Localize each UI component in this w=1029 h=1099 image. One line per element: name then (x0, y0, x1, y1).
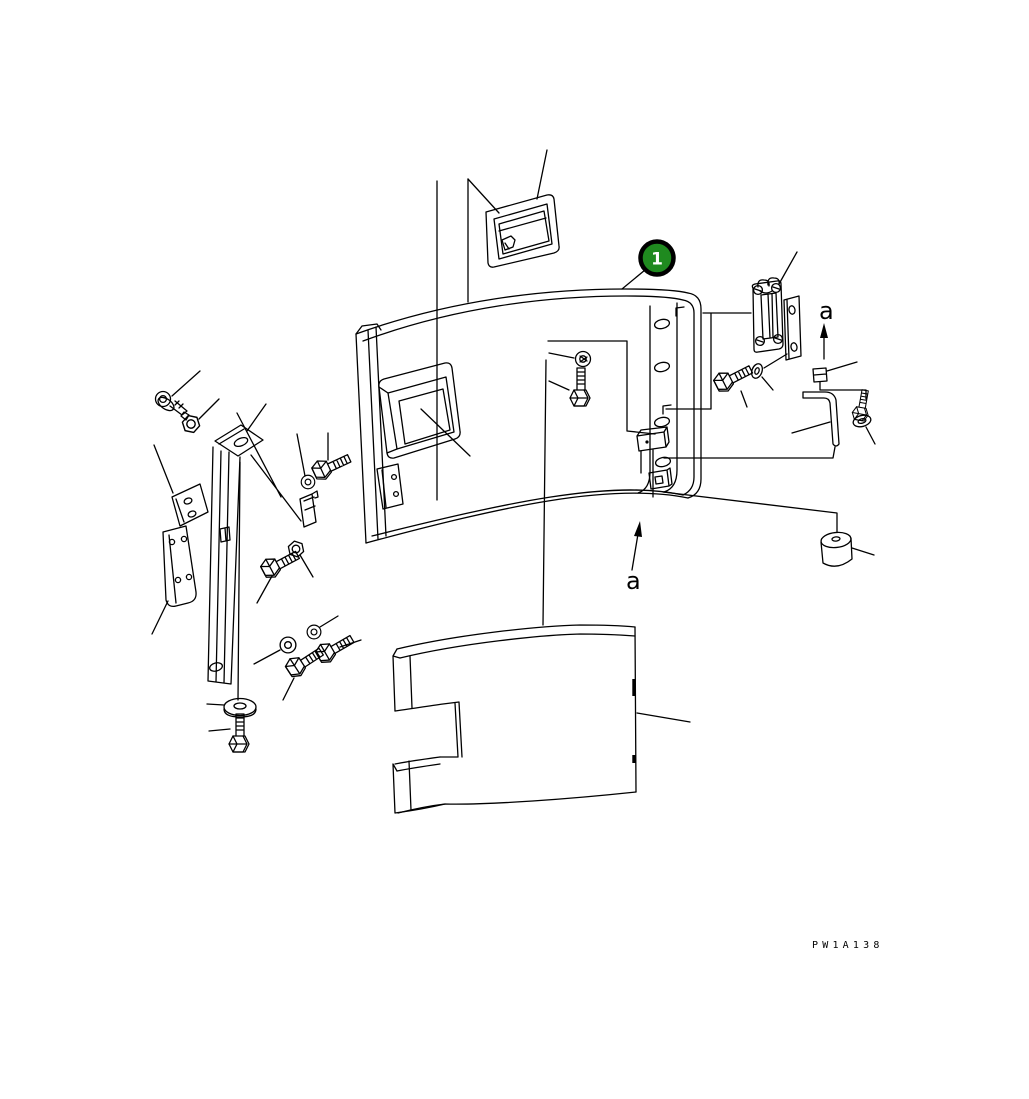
small-washer (301, 475, 315, 489)
hinge-assembly (712, 252, 801, 407)
rod-leader-line (664, 447, 835, 458)
mid-door-fasteners (549, 352, 591, 407)
hinge-leader-line (779, 252, 797, 284)
bolt-leader (257, 576, 272, 603)
flat-washer (307, 625, 321, 639)
door-inner-frame-line2 (638, 306, 650, 493)
rubber-cushion (820, 531, 874, 566)
square-nut (813, 368, 827, 382)
mount-strip-assembly (152, 371, 361, 752)
slot-collector-leader (666, 313, 751, 409)
projection-line (437, 179, 468, 500)
flat-washer (280, 637, 296, 653)
cushion-pointer-line (852, 548, 874, 555)
door-slot-holes (654, 318, 672, 468)
callout-leader-line (622, 270, 645, 289)
hex-bolt (570, 368, 590, 406)
handle-leader-line (468, 150, 547, 213)
nut-leader (199, 399, 219, 419)
hinge-bolt (712, 360, 755, 395)
hinge-bolt-leader (741, 391, 747, 407)
tab-leader (247, 404, 266, 431)
drawing-code: PW1A138 (812, 940, 884, 951)
pocket-leader-line (421, 409, 470, 456)
callout-number: 1 (651, 250, 663, 270)
small-bolt-leader (866, 427, 875, 444)
bolt-leader (283, 678, 294, 700)
view-arrow-a-bottom: a (626, 521, 642, 595)
long-plate-leader (152, 601, 168, 634)
door-inner-frame-line (664, 303, 677, 492)
washer-leader (320, 616, 338, 627)
bolt-leader (549, 381, 569, 390)
mount-strip (208, 404, 266, 684)
pan-screw (156, 371, 201, 420)
hex-nut (181, 415, 201, 434)
washer-leader (549, 353, 574, 358)
flush-handle-assembly (468, 150, 559, 267)
connector-leader (820, 382, 866, 399)
bolt-leader (209, 729, 230, 731)
seal-panel-pointer (637, 713, 690, 722)
seal-panel-leader-line (543, 360, 546, 625)
door-right-edge-inner (683, 300, 694, 495)
seal-panel (393, 625, 690, 813)
hinge-washer-leader (762, 377, 773, 390)
door-panel (356, 179, 837, 625)
l-shaped-rod (803, 392, 839, 446)
nut-leader (300, 555, 313, 577)
bolt-leader (340, 640, 361, 647)
callout-1-balloon[interactable]: 1 (622, 242, 674, 290)
small-plate (154, 445, 208, 526)
square-nut-leader (827, 362, 857, 371)
door-lower-bracket (377, 464, 403, 509)
small-washer-leader (297, 434, 305, 476)
view-label-a-bottom: a (626, 567, 641, 595)
door-left-band (356, 324, 386, 543)
hinge-rod-parts (792, 362, 875, 446)
pan-screw-leader (172, 371, 200, 396)
long-plate (152, 526, 196, 634)
hidden-line-mark (663, 307, 684, 414)
hex-bolt (310, 448, 353, 482)
plate-leader-line (764, 354, 787, 368)
parts-diagram: 1 (0, 0, 1029, 1099)
bottom-flat-washer (207, 699, 256, 718)
handle-outer-frame (486, 195, 559, 267)
washer-leader (254, 650, 280, 664)
door-top-edge-inner (363, 296, 683, 341)
latch-blocks (637, 427, 672, 497)
hex-bolt (259, 545, 302, 580)
washer-leader (207, 704, 224, 705)
window-pocket (379, 363, 470, 458)
small-plate-leader (154, 445, 173, 493)
vertical-hex-bolt (229, 714, 249, 752)
rod-pointer-line (792, 422, 830, 433)
view-label-a-top: a (819, 297, 834, 325)
view-arrow-a-top: a (819, 297, 834, 359)
flat-washer (576, 352, 591, 367)
key-cylinder (502, 236, 515, 250)
